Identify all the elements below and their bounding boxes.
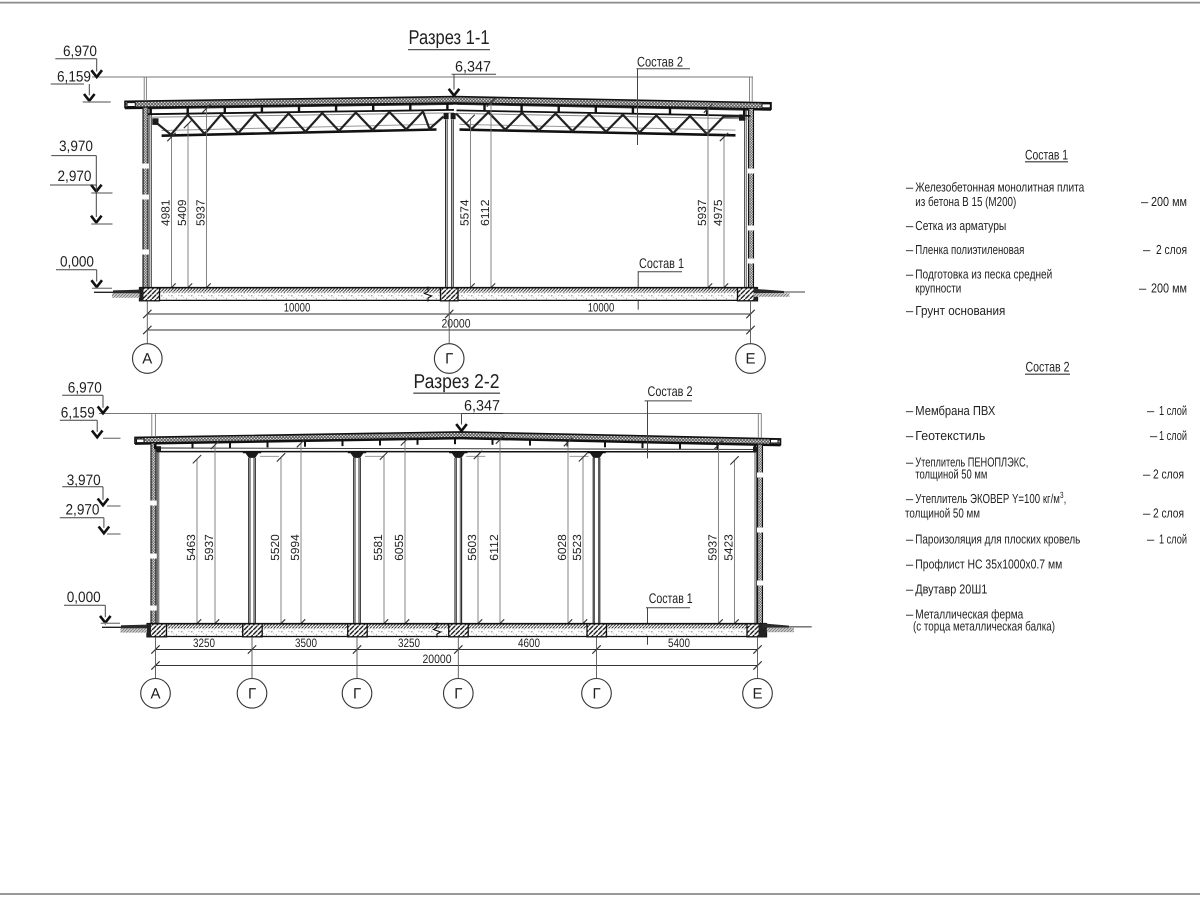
svg-text:–: – [906,582,914,597]
svg-text:Грунт основания: Грунт основания [915,303,1005,318]
svg-text:5937: 5937 [202,534,216,561]
svg-text:Состав 2: Состав 2 [1026,359,1070,375]
svg-text:–: – [906,532,914,547]
svg-text:5463: 5463 [184,534,198,561]
svg-text:толщиной 50 мм: толщиной 50 мм [905,506,980,521]
svg-text:6,159: 6,159 [57,68,91,85]
svg-text:4975: 4975 [711,199,725,226]
svg-text:–: – [1139,281,1147,296]
svg-text:Пароизоляция для плоских крове: Пароизоляция для плоских кровель [915,532,1080,547]
svg-text:1 слой: 1 слой [1159,403,1187,418]
svg-text:толщиной 50 мм: толщиной 50 мм [915,467,987,482]
svg-text:5994: 5994 [288,534,302,561]
svg-text:200 мм: 200 мм [1151,281,1187,296]
svg-text:–: – [906,179,914,194]
svg-text:6,347: 6,347 [455,59,491,76]
svg-text:6112: 6112 [478,200,492,227]
svg-text:Е: Е [752,686,762,703]
svg-text:А: А [150,686,160,703]
svg-text:1 слой: 1 слой [1159,532,1187,547]
svg-text:3500: 3500 [295,636,317,650]
svg-text:4600: 4600 [518,636,540,650]
svg-text:–: – [906,557,914,572]
svg-text:5400: 5400 [668,636,690,650]
svg-text:5409: 5409 [175,200,189,227]
svg-text:10000: 10000 [284,301,311,315]
svg-text:Г: Г [592,686,600,703]
svg-text:Пленка полиэтиленовая: Пленка полиэтиленовая [915,242,1024,257]
svg-text:Состав 1: Состав 1 [639,255,684,271]
svg-text:крупности: крупности [915,281,961,296]
svg-text:20000: 20000 [442,317,471,331]
svg-text:Г: Г [353,686,361,703]
svg-text:6112: 6112 [487,534,501,561]
svg-text:Состав 1: Состав 1 [649,590,693,606]
svg-text:Г: Г [454,686,462,703]
svg-text:6,970: 6,970 [63,43,97,60]
svg-text:–: – [1143,242,1151,257]
svg-text:5523: 5523 [570,534,584,561]
svg-text:Г: Г [248,686,256,703]
svg-text:6,159: 6,159 [61,404,95,421]
svg-text:5574: 5574 [458,199,472,226]
svg-text:5937: 5937 [706,534,720,561]
svg-text:5603: 5603 [465,534,479,561]
svg-text:2 слоя: 2 слоя [1153,467,1184,482]
svg-text:3,970: 3,970 [59,138,93,155]
svg-text:Г: Г [445,351,453,368]
svg-text:3250: 3250 [398,636,420,650]
svg-text:10000: 10000 [588,301,615,315]
svg-text:из бетона В 15 (М200): из бетона В 15 (М200) [915,194,1016,209]
svg-text:5581: 5581 [371,534,385,561]
svg-text:5937: 5937 [194,200,208,227]
svg-text:Подготовка из песка средней: Подготовка из песка средней [915,267,1052,282]
svg-text:Разрез 2-2: Разрез 2-2 [414,371,500,393]
svg-text:Двутавр 20Ш1: Двутавр 20Ш1 [915,582,987,597]
svg-text:Разрез 1-1: Разрез 1-1 [409,27,490,49]
svg-text:Профлист НС 35х1000х0.7 мм: Профлист НС 35х1000х0.7 мм [915,557,1062,572]
svg-text:–: – [906,403,914,418]
svg-text:4981: 4981 [159,200,173,227]
svg-text:–: – [1141,194,1149,209]
svg-text:–: – [906,428,914,443]
svg-text:200 мм: 200 мм [1151,194,1187,209]
svg-text:–: – [906,491,914,506]
svg-text:А: А [142,351,152,368]
svg-text:20000: 20000 [423,652,452,666]
svg-text:(с торца металлическая балка): (с торца металлическая балка) [913,619,1055,634]
svg-text:Утеплитель ЭКОВЕР Y=100 кг/м3,: Утеплитель ЭКОВЕР Y=100 кг/м3, [915,490,1066,506]
svg-text:–: – [1147,403,1155,418]
svg-text:2,970: 2,970 [66,502,100,519]
svg-text:Железобетонная монолитная пли: Железобетонная монолитная плита [915,179,1085,194]
svg-text:Геотекстиль: Геотекстиль [915,428,985,443]
svg-text:–: – [906,218,914,233]
svg-text:Мембрана ПВХ: Мембрана ПВХ [915,403,995,418]
svg-text:6,347: 6,347 [464,397,500,414]
svg-text:–: – [906,242,914,257]
svg-text:Состав 2: Состав 2 [648,383,693,399]
svg-text:6,970: 6,970 [68,380,102,397]
svg-text:0,000: 0,000 [67,589,101,606]
svg-text:1 слой: 1 слой [1159,428,1187,443]
svg-text:2 слоя: 2 слоя [1156,242,1187,257]
svg-text:Сетка из арматуры: Сетка из арматуры [915,218,1006,233]
svg-text:2,970: 2,970 [58,168,92,185]
svg-text:5520: 5520 [268,534,282,561]
svg-text:Состав 2: Состав 2 [637,54,683,70]
svg-text:5937: 5937 [695,200,709,227]
svg-text:Состав 1: Состав 1 [1025,146,1068,162]
svg-text:–: – [906,455,914,470]
svg-text:6028: 6028 [555,534,569,561]
svg-text:Е: Е [745,351,755,368]
svg-text:–: – [1143,467,1151,482]
svg-text:–: – [1147,532,1155,547]
svg-text:2 слоя: 2 слоя [1153,506,1184,521]
svg-text:0,000: 0,000 [60,253,94,270]
svg-text:3250: 3250 [193,636,215,650]
svg-text:–: – [906,267,914,282]
svg-text:–: – [1150,428,1158,443]
svg-text:6055: 6055 [392,534,406,561]
svg-text:–: – [1143,506,1151,521]
svg-text:5423: 5423 [722,534,736,561]
svg-text:–: – [906,303,914,318]
